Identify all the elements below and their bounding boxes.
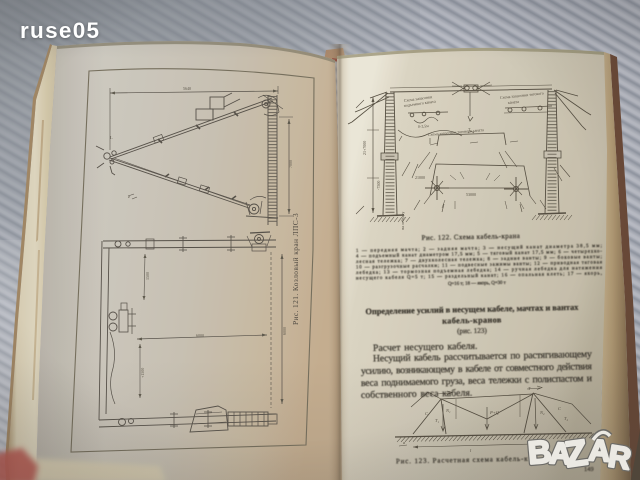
svg-text:ruse05: ruse05 (20, 18, 100, 43)
